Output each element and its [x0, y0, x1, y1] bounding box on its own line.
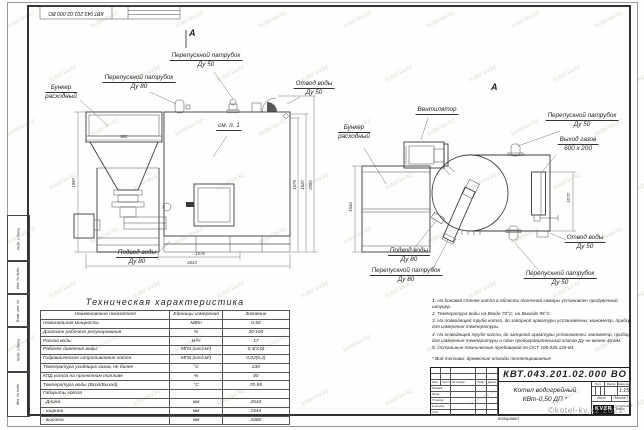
label-water-inlet-front: Подвод воды Ду 80: [116, 249, 158, 266]
spec-cell: [222, 390, 289, 399]
dim-1960: 1960: [71, 178, 76, 188]
dim-2080: 2080: [308, 180, 313, 191]
copied-label: Копировал: [498, 416, 519, 421]
margin-stamp: Инв. № дубл.: [7, 260, 30, 295]
watermark-stamp: ©kotel-kv.kz 2021: [548, 405, 624, 415]
spec-cell: - высота: [41, 416, 170, 425]
notes-block: 1. На боковой стенке котла в области топ…: [432, 298, 634, 363]
sheets-label: Листов 1: [612, 396, 632, 402]
spec-cell: 2080: [222, 416, 289, 425]
spec-row: Температура воды (Вход/Выход)°С70-95: [41, 381, 290, 390]
spec-cell: 0,50: [222, 319, 289, 328]
margin-stamp-label: Подп. и дата: [17, 338, 21, 361]
dim-1070: 1070: [566, 193, 571, 203]
note-item: 5. Остальные технические требования по О…: [432, 345, 634, 351]
drawing-sheet: 1960 902 1875 1920 2080 1078 2643: [0, 0, 644, 430]
dim-1920: 1920: [300, 180, 305, 190]
spec-cell: 1544: [222, 407, 289, 416]
spec-row: - ширинамм1544: [41, 407, 290, 416]
label-gas-outlet: Выход газов 600 x 200: [558, 136, 599, 153]
margin-stamp-label: Инв. № подл.: [17, 383, 21, 405]
spec-cell: мм: [170, 407, 222, 416]
note-item: 2. Температура воды на Входе 70°С, на Вы…: [432, 311, 634, 317]
label-bypass50-bottom-side: Перепускной патрубок Ду 50: [524, 270, 597, 287]
spec-cell: МВт: [170, 319, 222, 328]
spec-cell: КПД котла на проектном топливе: [41, 372, 170, 381]
dim-2643: 2643: [186, 260, 197, 265]
note-item: 1. На боковой стенке котла в области топ…: [432, 298, 634, 310]
spec-cell: %: [170, 372, 222, 381]
spec-cell: °С: [170, 381, 222, 390]
side-view: [362, 142, 558, 252]
spec-row: Рабочее давление водыМПа (кгс/см²)0,3(3,…: [41, 346, 290, 355]
spec-row: КПД котла на проектном топливе%80: [41, 372, 290, 381]
sheet-label: Лист: [592, 396, 612, 402]
spec-table-title: Техническая характеристика: [40, 297, 290, 307]
label-bypass80-front: Перепускной патрубок Ду 80: [103, 74, 176, 91]
note-item: 3. На подводящей трубе котла, до запорно…: [432, 318, 634, 330]
spec-header-name: Наименование показателя: [41, 311, 170, 320]
label-water-inlet-side: Подвод воды Ду 80: [388, 247, 430, 264]
spec-cell: МПа (кгс/см²): [170, 354, 222, 363]
dim-902: 902: [120, 134, 128, 139]
spec-cell: 230: [222, 363, 289, 372]
spec-row: - высотамм2080: [41, 416, 290, 425]
title-grid-cell: [476, 410, 487, 416]
corner-stamp-designation: КВТ.043.201.02.000 ВО: [40, 6, 112, 19]
margin-stamp: Взам. инв. №: [7, 293, 30, 328]
dim-1544: 1544: [348, 202, 353, 212]
margin-stamp: Подп. и дата: [7, 326, 30, 373]
spec-cell: Габариты котла: [41, 390, 170, 399]
note-item: 4. На отводящей трубе котла, до запорной…: [432, 332, 634, 344]
spec-cell: Расход воды: [41, 337, 170, 346]
spec-table: Техническая характеристика Наименование …: [40, 297, 290, 425]
spec-cell: мм: [170, 398, 222, 407]
spec-cell: - ширина: [41, 407, 170, 416]
spec-cell: 17: [222, 337, 289, 346]
spec-row: Гидравлическое сопротивление котлаМПа (к…: [41, 354, 290, 363]
spec-table-body: Номинальная мощностьМВт0,50Диапазон рабо…: [41, 319, 290, 425]
label-bypass80-side: Перепускной патрубок Ду 80: [370, 267, 443, 284]
title-grid-cell: Утв.: [431, 410, 451, 416]
label-fan: Вентилятор: [415, 106, 458, 115]
spec-row: - Длинамм2643: [41, 398, 290, 407]
label-bypass50-top-side: Перепускной патрубок Ду 50: [546, 112, 619, 129]
spec-cell: Рабочее давление воды: [41, 346, 170, 355]
spec-cell: 2643: [222, 398, 289, 407]
spec-cell: 70-95: [222, 381, 289, 390]
product-name-line1: Котел водогрейный: [514, 387, 577, 394]
spec-cell: Температура воды (Вход/Выход): [41, 381, 170, 390]
front-view-dimensions: 1960 902 1875 1920 2080 1078 2643: [71, 72, 318, 269]
margin-stamp-label: Взам. инв. №: [17, 299, 21, 321]
scale-value: 1:15: [618, 387, 631, 396]
spec-cell: Диапазон рабочего регулирования: [41, 328, 170, 337]
spec-cell: 0,02(0,2): [222, 354, 289, 363]
spec-row: Номинальная мощностьМВт0,50: [41, 319, 290, 328]
label-bunker-front: Бункер расходный: [45, 84, 77, 101]
spec-row: Диапазон рабочего регулирования%30-100: [41, 328, 290, 337]
spec-header-value: Значение: [222, 311, 289, 320]
title-block-grid: Изм.Лист№ докум.Подп.ДатаРазраб.Пров.Т.к…: [431, 368, 498, 416]
view-mark-a: А: [491, 82, 498, 92]
title-grid-cell: [451, 410, 476, 416]
dim-1875: 1875: [292, 180, 297, 190]
spec-cell: м³/ч: [170, 337, 222, 346]
title-grid-row: Утв.: [431, 410, 498, 416]
label-bunker-side: Бункер расходный: [338, 124, 370, 141]
spec-cell: 80: [222, 372, 289, 381]
dim-1078: 1078: [195, 251, 205, 256]
notes-list: 1. На боковой стенке котла в области топ…: [432, 298, 634, 351]
spec-row: Габариты котла: [41, 390, 290, 399]
margin-stamp: Подп. и дата: [7, 215, 30, 262]
spec-cell: мм: [170, 416, 222, 425]
spec-cell: %: [170, 328, 222, 337]
spec-cell: Номинальная мощность: [41, 319, 170, 328]
margin-stamp-label: Инв. № дубл.: [17, 266, 21, 288]
spec-cell: Гидравлическое сопротивление котла: [41, 354, 170, 363]
label-see-note: см. п. 1: [216, 122, 241, 131]
title-grid-cell: [487, 410, 498, 416]
margin-stamp-label: Подп. и дата: [17, 227, 21, 250]
spec-row: Расход водым³/ч17: [41, 337, 290, 346]
margin-stamp: Инв. № подл.: [7, 371, 30, 417]
side-view-dimensions: 1544 1070: [348, 118, 576, 272]
fuel-note: * Вид топлива: древесные отходы пеллетир…: [432, 356, 634, 362]
spec-cell: 0,3(3,0): [222, 346, 289, 355]
product-name-line2: КВт-0,50 ДП *: [523, 396, 567, 403]
title-block-designation: КВТ.043.201.02.000 ВО: [498, 368, 631, 382]
spec-row: Температура уходящих газов, не более°С23…: [41, 363, 290, 372]
front-view-hopper: [74, 112, 166, 252]
spec-cell: Температура уходящих газов, не более: [41, 363, 170, 372]
label-water-outlet-front: Отвод воды Ду 50: [294, 80, 335, 97]
spec-cell: [170, 390, 222, 399]
spec-cell: - Длина: [41, 398, 170, 407]
label-bypass50-front: Перепускной патрубок Ду 50: [170, 52, 243, 69]
spec-cell: МПа (кгс/см²): [170, 346, 222, 355]
label-water-outlet-side: Отвод воды Ду 50: [565, 234, 606, 251]
spec-header-units: Единицы измерения: [170, 311, 222, 320]
spec-cell: 30-100: [222, 328, 289, 337]
section-mark-a: А: [189, 28, 196, 38]
spec-cell: °С: [170, 363, 222, 372]
